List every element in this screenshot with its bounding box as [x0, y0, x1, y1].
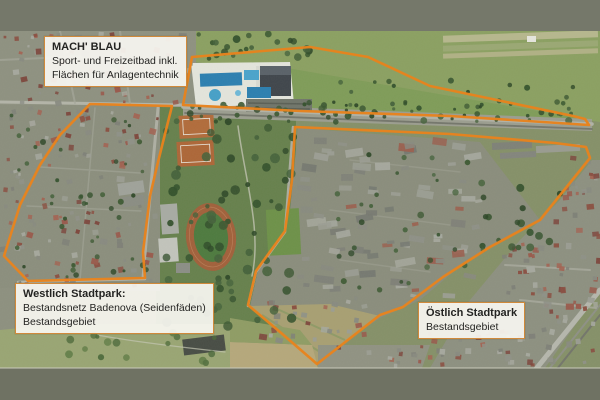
area-label-oestlich-line1: Bestandsgebiet — [426, 320, 517, 334]
area-label-mach-blau-line1: Sport- und Freizeitbad inkl. — [52, 54, 179, 68]
area-label-mach-blau-line2: Flächen für Anlagentechnik — [52, 68, 179, 82]
area-label-mach-blau: MACH' BLAU Sport- und Freizeitbad inkl. … — [44, 36, 187, 87]
top-letterbox-bar — [0, 0, 600, 31]
area-label-westlich-title: Westlich Stadtpark: — [23, 287, 206, 301]
bottom-letterbox-bar — [0, 368, 600, 400]
slide-figure: MACH' BLAU Sport- und Freizeitbad inkl. … — [0, 0, 600, 400]
area-label-westlich-stadtpark: Westlich Stadtpark: Bestandsnetz Badenov… — [15, 283, 214, 334]
area-label-westlich-line1: Bestandsnetz Badenova (Seidenfäden) — [23, 301, 206, 315]
area-label-mach-blau-title: MACH' BLAU — [52, 40, 179, 54]
area-label-oestlich-stadtpark: Östlich Stadtpark Bestandsgebiet — [418, 302, 525, 339]
area-label-oestlich-title: Östlich Stadtpark — [426, 306, 517, 320]
area-label-westlich-line2: Bestandsgebiet — [23, 315, 206, 329]
